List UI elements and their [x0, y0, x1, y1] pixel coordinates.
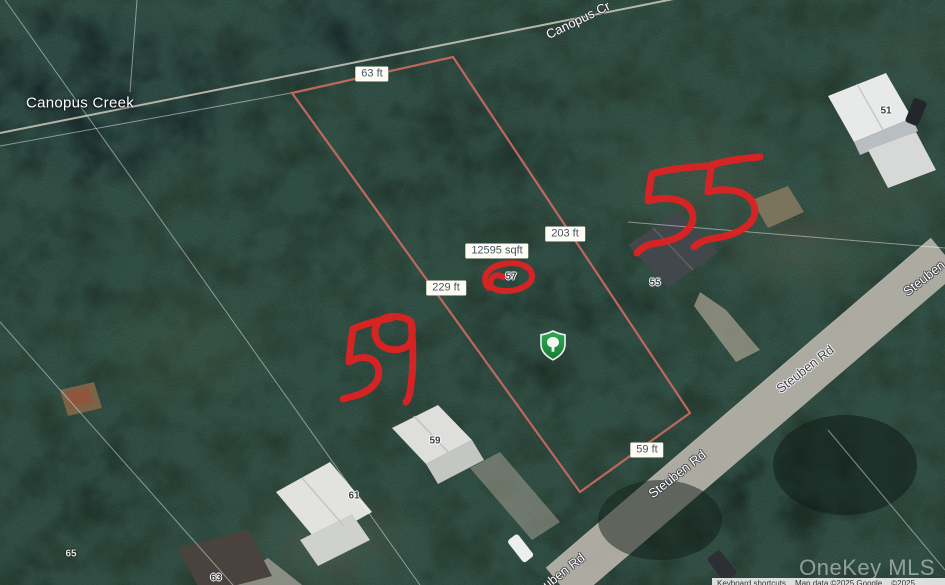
- imagery-credit: ©2025: [891, 579, 915, 585]
- measurement-side-left: 229 ft: [426, 281, 466, 296]
- shed: [60, 382, 102, 416]
- measurement-side-right: 203 ft: [545, 227, 585, 242]
- measurement-rear: 59 ft: [630, 443, 663, 458]
- map-attribution-bar: Keyboard shortcuts Map data ©2025 Google…: [712, 578, 945, 585]
- driveway-59: [470, 452, 560, 540]
- park-shield-marker-icon[interactable]: [541, 331, 565, 360]
- measurement-area: 12595 sqft: [465, 244, 528, 259]
- house-number-65: 65: [65, 549, 76, 560]
- house-number-55: 55: [649, 278, 660, 289]
- canopus-cr-road-line: [0, 0, 945, 133]
- house-number-57: 57: [505, 272, 516, 283]
- freehand-annotation-59: [343, 316, 413, 402]
- driveway-55: [694, 292, 760, 362]
- house-number-61: 61: [348, 491, 359, 502]
- house-number-59: 59: [429, 436, 440, 447]
- house-61: [276, 462, 372, 566]
- keyboard-shortcuts-link[interactable]: Keyboard shortcuts: [717, 579, 786, 585]
- subject-parcel-outline[interactable]: [292, 57, 690, 492]
- satellite-map-canvas[interactable]: Canopus Creek Canopus Cr Steuben Steuben…: [0, 0, 945, 585]
- place-label-canopus-creek: Canopus Creek: [26, 95, 134, 112]
- tree-shadow: [773, 415, 917, 515]
- measurement-frontage: 63 ft: [355, 67, 388, 82]
- house-number-51: 51: [880, 106, 891, 117]
- house-51: [828, 73, 936, 188]
- map-data-credit: Map data ©2025 Google: [795, 579, 882, 585]
- house-number-63: 63: [210, 573, 221, 584]
